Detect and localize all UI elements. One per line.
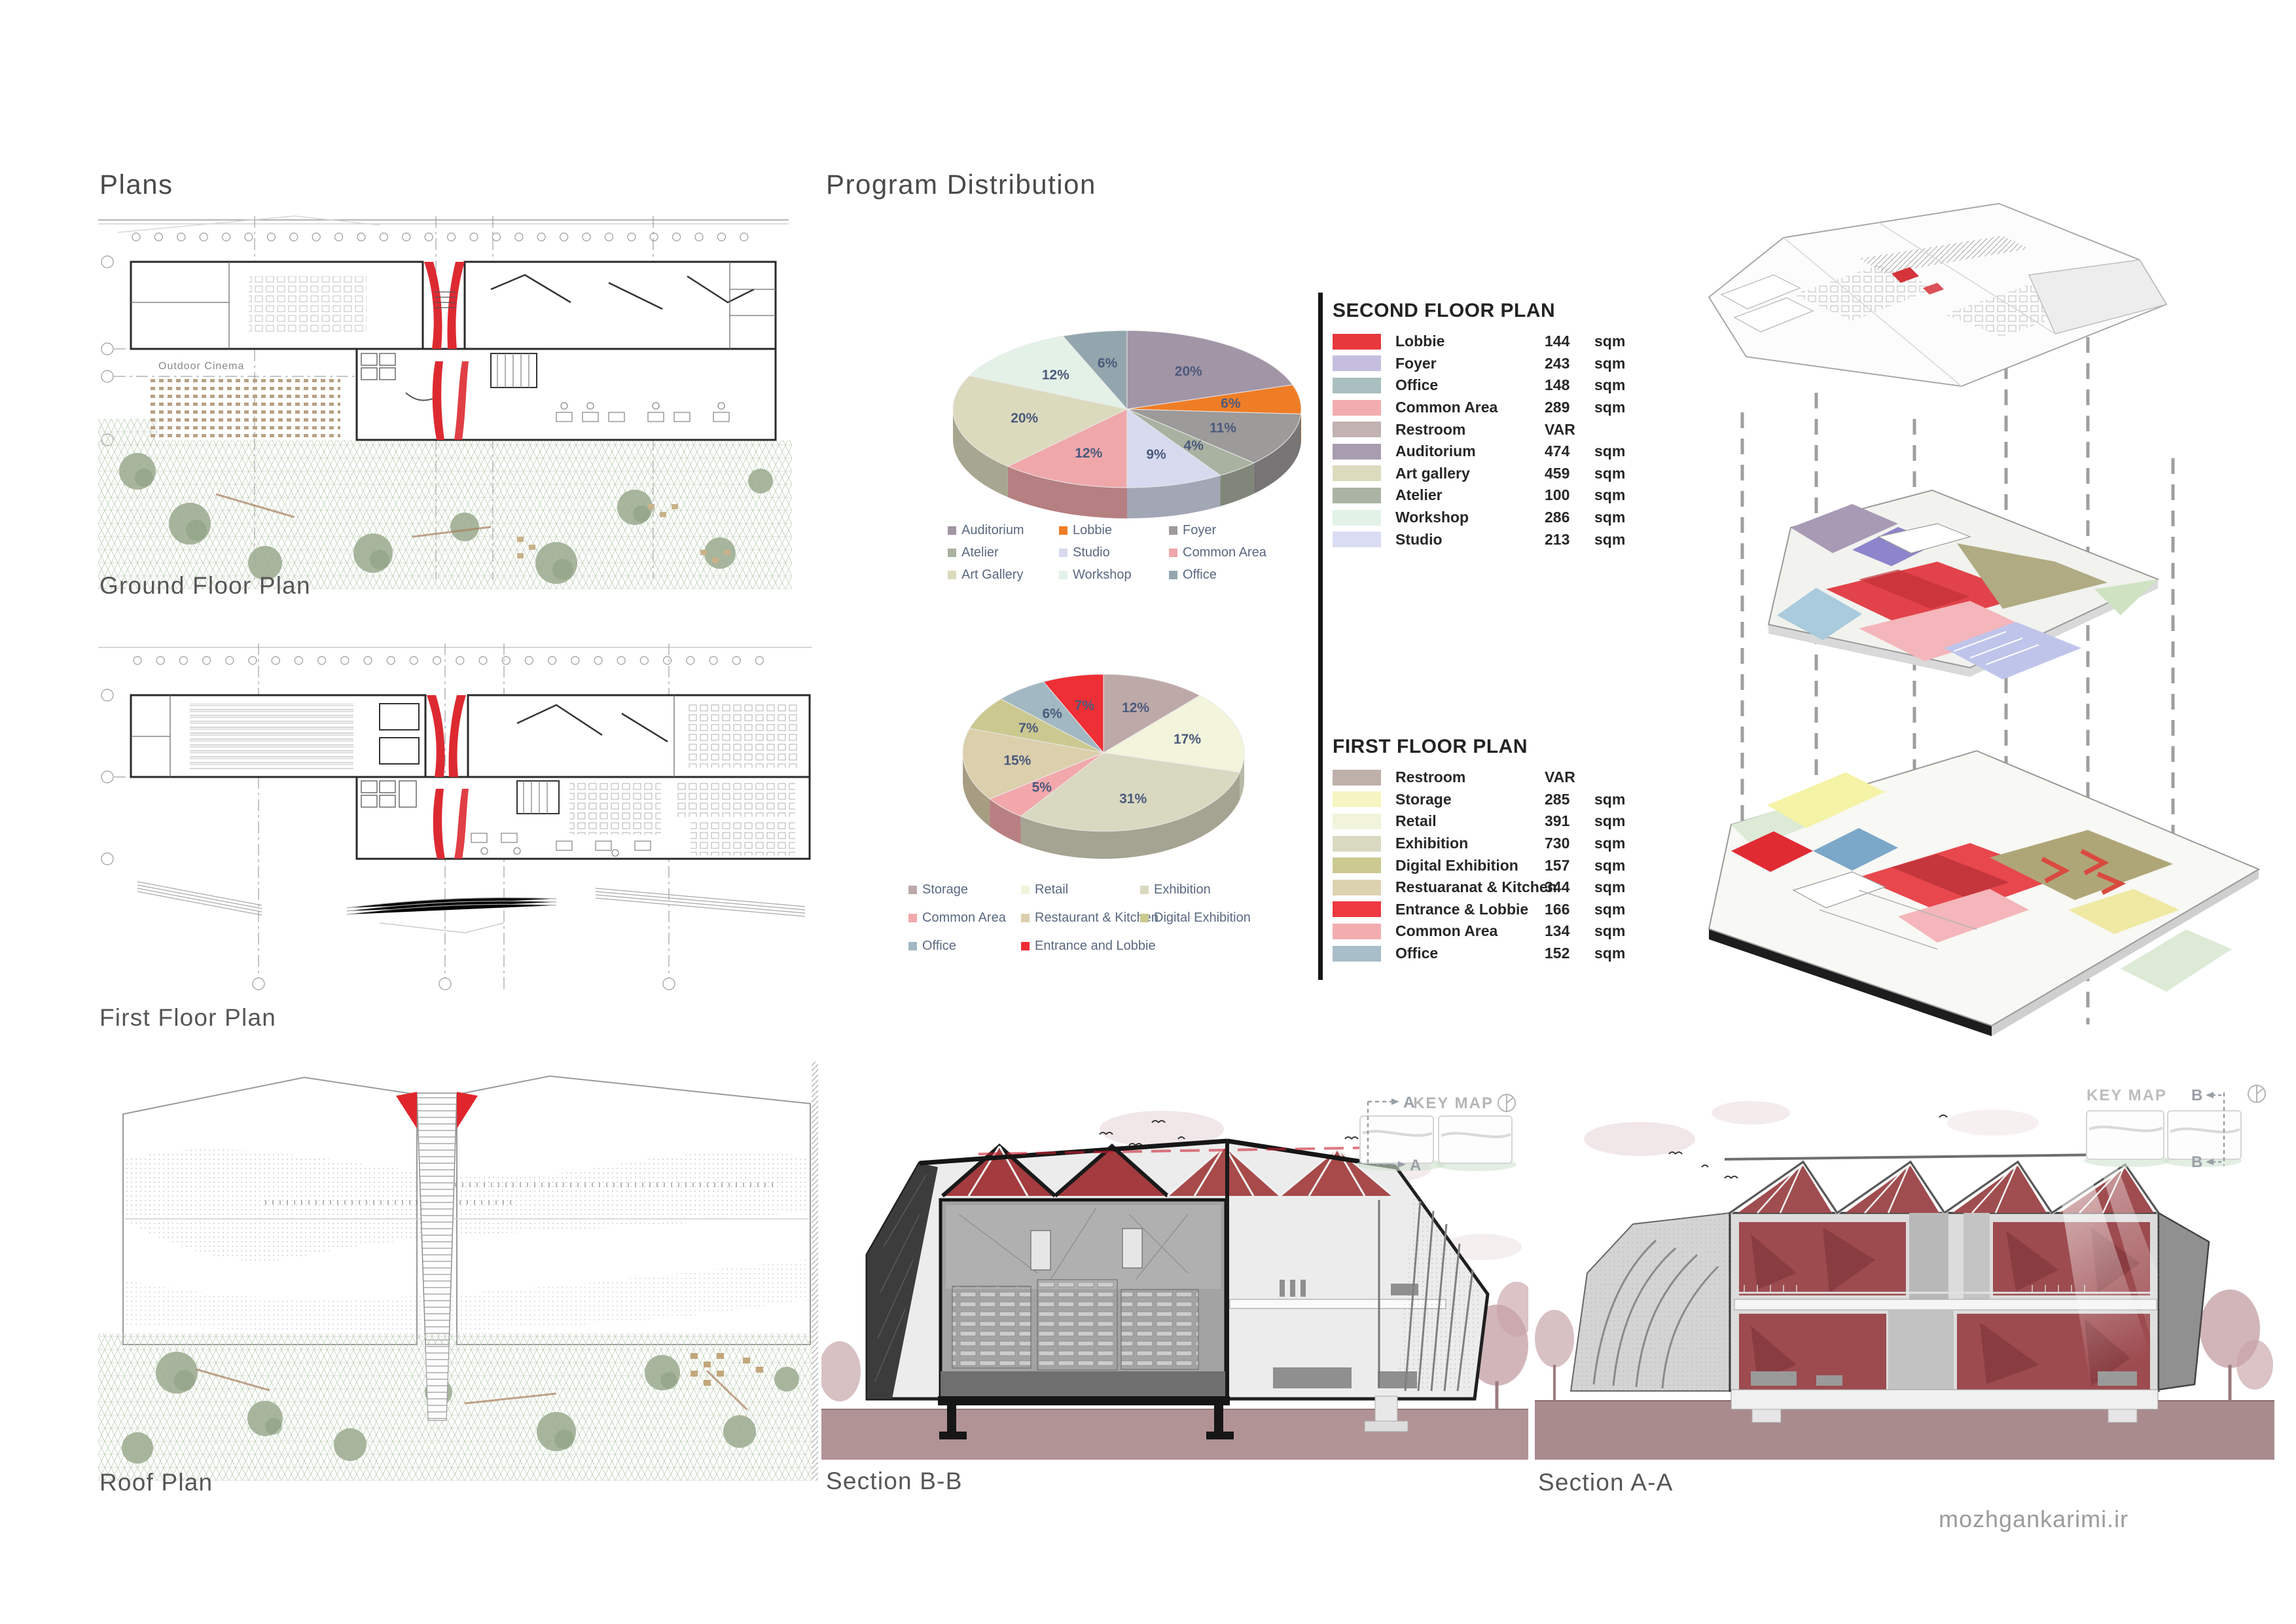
legend-item: Art Gallery (948, 564, 1059, 586)
program-area-value: 213 (1545, 531, 1594, 549)
roof-plan-drawing (98, 1062, 818, 1481)
program-area-value: 391 (1545, 812, 1594, 830)
legend-swatch (948, 526, 956, 535)
legend-swatch (1059, 549, 1067, 557)
program-label: Exhibition (1381, 835, 1545, 852)
section-marker-a-top: A (1403, 1094, 1414, 1111)
color-swatch (1333, 814, 1381, 829)
program-area-value: 157 (1545, 857, 1594, 875)
program-area-unit: sqm (1594, 333, 1653, 350)
program-table-title: FIRST FLOOR PLAN (1333, 736, 1653, 758)
program-table-row: Exhibition730sqm (1333, 833, 1653, 855)
ground-plane (821, 1409, 1528, 1460)
program-table-row: Restuaranat & Kitchen344sqm (1333, 876, 1653, 899)
outdoor-cinema-seats (151, 374, 340, 440)
color-swatch (1333, 770, 1381, 785)
legend-swatch (908, 886, 917, 894)
program-label: Office (1381, 376, 1545, 394)
program-label: Restroom (1381, 421, 1545, 439)
program-label: Restroom (1381, 768, 1545, 786)
keymap-label: KEY MAP (2087, 1087, 2167, 1104)
plans-title: Plans (99, 169, 173, 200)
color-swatch (1333, 791, 1381, 807)
program-area-value: 100 (1545, 486, 1594, 504)
color-swatch (1333, 880, 1381, 895)
legend-swatch (1140, 886, 1149, 894)
canopy-hatch-lines (137, 882, 805, 933)
program-label: Auditorium (1381, 442, 1545, 460)
program-area-value: 474 (1545, 442, 1594, 460)
section-bb-caption: Section B-B (826, 1468, 963, 1495)
program-area-unit: sqm (1594, 465, 1653, 482)
program-label: Art gallery (1381, 465, 1545, 482)
section-marker-a-bottom: A (1410, 1157, 1421, 1174)
color-swatch (1333, 924, 1381, 939)
color-swatch (1333, 334, 1381, 350)
program-area-unit: sqm (1594, 376, 1653, 394)
landscape-green (98, 419, 792, 589)
left-lattice-shell (1571, 1213, 1730, 1391)
ground-floor-plan-drawing: Outdoor Cinema (98, 196, 798, 589)
first-floor-layer (1709, 751, 2259, 1036)
row-grid-bubbles (101, 256, 113, 446)
pie-slice-label: 7% (1018, 721, 1039, 736)
program-area-unit: sqm (1594, 531, 1653, 549)
presentation-board: Plans Program Distribution (0, 0, 2296, 1624)
second-floor-pie-legend: AuditoriumLobbieFoyerAtelierStudioCommon… (948, 519, 1306, 586)
pie-slice-label: 6% (1221, 396, 1241, 411)
legend-item: Office (1169, 564, 1306, 586)
color-swatch (1333, 444, 1381, 460)
program-table-row: Foyer243sqm (1333, 353, 1653, 375)
program-table-row: Storage285sqm (1333, 789, 1653, 811)
program-area-value: VAR (1545, 768, 1594, 786)
legend-item: Retail (1021, 876, 1140, 904)
legend-label: Storage (922, 882, 968, 897)
color-swatch (1333, 465, 1381, 481)
legend-swatch (1059, 526, 1067, 535)
program-table-row: RestroomVAR (1333, 418, 1653, 441)
program-label: Workshop (1381, 509, 1545, 526)
first-floor-program-table: FIRST FLOOR PLANRestroomVARStorage285sqm… (1333, 736, 1653, 964)
pie-slice-label: 20% (1011, 410, 1038, 425)
legend-label: Art Gallery (961, 568, 1023, 583)
legend-swatch (1169, 571, 1177, 579)
color-swatch (1333, 901, 1381, 917)
program-label: Lobbie (1381, 333, 1545, 350)
section-aa-rendering: KEY MAP B B (1535, 1077, 2274, 1460)
outdoor-cinema-label: Outdoor Cinema (158, 361, 244, 372)
second-floor-pie-chart: 20%6%11%4%9%12%20%12%6% (942, 300, 1322, 549)
program-label: Restuaranat & Kitchen (1381, 878, 1545, 896)
pie-slice-label: 7% (1075, 698, 1095, 713)
legend-swatch (1021, 942, 1030, 950)
program-area-value: 459 (1545, 465, 1594, 482)
section-bb-rendering: KEY MAP A A (821, 1083, 1528, 1460)
program-label: Common Area (1381, 399, 1545, 416)
legend-item: Entrance and Lobbie (1021, 932, 1140, 960)
program-table-row: Common Area289sqm (1333, 397, 1653, 419)
legend-label: Foyer (1183, 523, 1216, 538)
roof-layer (1709, 204, 2166, 386)
keymap-section-bb: KEY MAP A A (1356, 1094, 1516, 1174)
color-swatch (1333, 422, 1381, 437)
section-aa-caption: Section A-A (1538, 1469, 1674, 1496)
ground-floor-plan-caption: Ground Floor Plan (99, 572, 311, 600)
program-table-row: Art gallery459sqm (1333, 463, 1653, 485)
legend-swatch (908, 942, 917, 950)
pie-slice-label: 12% (1122, 700, 1149, 715)
program-area-value: 144 (1545, 333, 1594, 350)
keymap-section-aa: KEY MAP B B (2084, 1085, 2265, 1171)
legend-label: Lobbie (1073, 523, 1112, 538)
board-edge-hatch (812, 1062, 818, 1481)
pie-slice-label: 11% (1210, 421, 1236, 436)
color-swatch (1333, 355, 1381, 371)
program-label: Retail (1381, 812, 1545, 830)
program-label: Entrance & Lobbie (1381, 901, 1545, 918)
pie-slice-label: 12% (1075, 446, 1102, 461)
program-table-row: Lobbie144sqm (1333, 331, 1653, 353)
program-area-value: 286 (1545, 509, 1594, 526)
second-floor-layer (1768, 490, 2158, 679)
legend-item: Workshop (1059, 564, 1169, 586)
program-area-unit: sqm (1594, 509, 1653, 526)
program-table-row: Retail391sqm (1333, 810, 1653, 833)
program-area-value: 730 (1545, 835, 1594, 852)
program-label: Digital Exhibition (1381, 857, 1545, 875)
second-floor-program-table: SECOND FLOOR PLANLobbie144sqmFoyer243sqm… (1333, 300, 1653, 550)
clouds (1584, 1101, 2039, 1156)
legend-swatch (1059, 571, 1067, 579)
pie-slice-label: 31% (1119, 791, 1147, 806)
section-marker-b-bottom: B (2191, 1153, 2202, 1171)
program-area-unit: sqm (1594, 878, 1653, 896)
first-floor-plan-drawing (98, 625, 818, 1005)
legend-item: Digital Exhibition (1140, 904, 1297, 932)
legend-item: Restaurant & Kitchen (1021, 904, 1140, 932)
color-swatch (1333, 378, 1381, 393)
program-table-row: Studio213sqm (1333, 528, 1653, 550)
section-marker-b-top: B (2191, 1087, 2202, 1104)
legend-swatch (908, 914, 917, 922)
legend-label: Office (1183, 568, 1217, 583)
program-label: Common Area (1381, 922, 1545, 940)
program-area-unit: sqm (1594, 812, 1653, 830)
legend-label: Common Area (922, 911, 1006, 926)
first-floor-pie-legend: StorageRetailExhibitionCommon AreaRestau… (908, 876, 1297, 960)
color-swatch (1333, 857, 1381, 873)
legend-label: Atelier (961, 545, 999, 560)
pie-slice-label: 20% (1175, 364, 1202, 379)
program-table-row: Workshop286sqm (1333, 507, 1653, 529)
program-table-row: Office148sqm (1333, 374, 1653, 397)
pie-slice-label: 6% (1098, 355, 1118, 370)
legend-item: Atelier (948, 541, 1059, 564)
legend-swatch (1140, 914, 1149, 922)
program-distribution-title: Program Distribution (826, 169, 1096, 200)
program-area-value: 344 (1545, 878, 1594, 896)
program-area-unit: sqm (1594, 857, 1653, 875)
legend-item: Lobbie (1059, 519, 1169, 541)
legend-swatch (948, 571, 956, 579)
landscape-green (98, 1333, 812, 1481)
program-table-row: Atelier100sqm (1333, 484, 1653, 507)
pie-slice-label: 12% (1042, 368, 1069, 383)
program-area-value: 152 (1545, 945, 1594, 962)
legend-item: Common Area (1169, 541, 1306, 564)
program-panel-divider (1318, 293, 1323, 980)
program-area-unit: sqm (1594, 835, 1653, 852)
legend-label: Digital Exhibition (1154, 911, 1251, 926)
program-label: Foyer (1381, 355, 1545, 372)
pie-slice-label: 17% (1174, 732, 1201, 747)
program-label: Office (1381, 945, 1545, 962)
program-table-row: Auditorium474sqm (1333, 441, 1653, 463)
pie-slice-label: 9% (1146, 447, 1166, 462)
legend-item: Exhibition (1140, 876, 1297, 904)
program-area-value: 285 (1545, 791, 1594, 808)
program-area-unit: sqm (1594, 399, 1653, 416)
program-table-row: Office152sqm (1333, 943, 1653, 965)
legend-label: Common Area (1183, 545, 1266, 560)
program-table-row: RestroomVAR (1333, 767, 1653, 789)
legend-label: Entrance and Lobbie (1035, 939, 1156, 954)
program-area-unit: sqm (1594, 922, 1653, 940)
program-area-value: VAR (1545, 421, 1594, 439)
program-label: Storage (1381, 791, 1545, 808)
program-area-unit: sqm (1594, 486, 1653, 504)
program-table-row: Entrance & Lobbie166sqm (1333, 899, 1653, 921)
program-area-unit: sqm (1594, 945, 1653, 962)
legend-item: Foyer (1169, 519, 1306, 541)
color-swatch (1333, 488, 1381, 503)
legend-label: Retail (1035, 882, 1068, 897)
color-swatch (1333, 400, 1381, 416)
program-table-row: Common Area134sqm (1333, 920, 1653, 943)
first-floor-pie-chart: 12%17%31%5%15%7%6%7% (929, 645, 1309, 893)
pie-slice-label: 5% (1032, 780, 1052, 795)
program-area-value: 148 (1545, 376, 1594, 394)
program-area-value: 243 (1545, 355, 1594, 372)
program-area-unit: sqm (1594, 791, 1653, 808)
datum-rules (98, 216, 789, 232)
keymap-label: KEY MAP (1413, 1094, 1494, 1112)
legend-label: Workshop (1073, 568, 1132, 583)
pie-slice-label: 4% (1184, 438, 1204, 453)
legend-swatch (1169, 549, 1177, 557)
color-swatch (1333, 532, 1381, 547)
watermark: mozhgankarimi.ir (1939, 1506, 2128, 1533)
legend-item: Common Area (908, 904, 1021, 932)
program-table-title: SECOND FLOOR PLAN (1333, 300, 1653, 322)
program-area-value: 289 (1545, 399, 1594, 416)
pie-slice-label: 15% (1003, 753, 1031, 768)
legend-label: Exhibition (1154, 882, 1211, 897)
pie-slice-label: 6% (1042, 706, 1062, 721)
legend-item: Studio (1059, 541, 1169, 564)
program-area-unit: sqm (1594, 442, 1653, 460)
north-compass-icon (2248, 1085, 2265, 1102)
program-area-unit: sqm (1594, 355, 1653, 372)
legend-item: Storage (908, 876, 1021, 904)
right-side-facet (2159, 1213, 2209, 1390)
legend-label: Auditorium (961, 523, 1024, 538)
legend-item: Office (908, 932, 1021, 960)
legend-swatch (1021, 886, 1030, 894)
north-compass-icon (1498, 1094, 1515, 1111)
legend-swatch (1169, 526, 1177, 535)
color-swatch (1333, 946, 1381, 962)
auditorium-hall (941, 1200, 1226, 1396)
program-table-row: Digital Exhibition157sqm (1333, 854, 1653, 876)
legend-label: Studio (1073, 545, 1110, 560)
program-label: Atelier (1381, 486, 1545, 504)
color-swatch (1333, 510, 1381, 526)
program-label: Studio (1381, 531, 1545, 549)
legend-label: Office (922, 939, 956, 954)
legend-swatch (1021, 914, 1030, 922)
color-swatch (1333, 836, 1381, 852)
program-area-value: 166 (1545, 901, 1594, 918)
column-grid-bubbles (132, 233, 748, 241)
exploded-axonometric-diagram (1662, 196, 2278, 1067)
program-area-unit: sqm (1594, 901, 1653, 918)
first-floor-plan-caption: First Floor Plan (99, 1004, 276, 1032)
roof-plan-caption: Roof Plan (99, 1469, 213, 1496)
legend-swatch (948, 549, 956, 557)
legend-item: Auditorium (948, 519, 1059, 541)
program-area-value: 134 (1545, 922, 1594, 940)
